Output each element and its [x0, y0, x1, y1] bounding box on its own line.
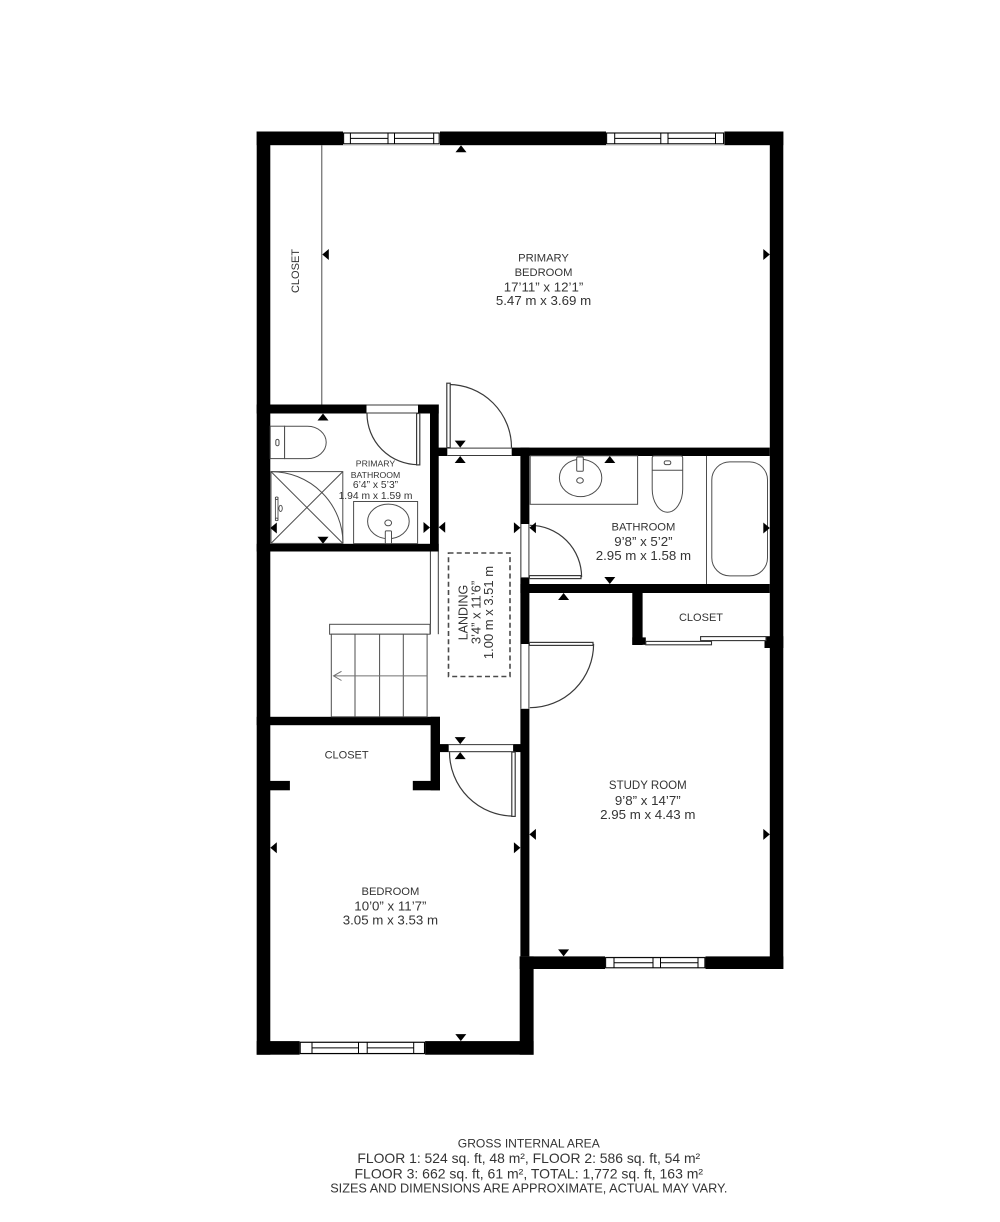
- svg-text:SIZES AND DIMENSIONS ARE APPRO: SIZES AND DIMENSIONS ARE APPROXIMATE, AC…: [330, 1182, 727, 1196]
- svg-text:6’4” x 5’3”: 6’4” x 5’3”: [353, 480, 399, 491]
- svg-text:FLOOR 3: 662 sq. ft, 61 m², TO: FLOOR 3: 662 sq. ft, 61 m², TOTAL: 1,772…: [355, 1165, 704, 1181]
- svg-text:9’8” x 5’2”: 9’8” x 5’2”: [614, 534, 672, 549]
- svg-text:PRIMARY: PRIMARY: [518, 252, 569, 264]
- svg-text:FLOOR 1: 524 sq. ft, 48 m², FL: FLOOR 1: 524 sq. ft, 48 m², FLOOR 2: 586…: [357, 1150, 700, 1166]
- svg-text:3.05 m x 3.53 m: 3.05 m x 3.53 m: [343, 913, 438, 928]
- svg-text:BATHROOM: BATHROOM: [351, 470, 401, 480]
- svg-text:BEDROOM: BEDROOM: [361, 886, 419, 898]
- svg-text:GROSS INTERNAL AREA: GROSS INTERNAL AREA: [458, 1137, 601, 1151]
- svg-text:1.94 m x 1.59 m: 1.94 m x 1.59 m: [339, 491, 413, 502]
- svg-text:BEDROOM: BEDROOM: [515, 267, 573, 279]
- svg-text:2.95 m x 1.58 m: 2.95 m x 1.58 m: [596, 548, 691, 563]
- svg-text:CLOSET: CLOSET: [325, 750, 369, 762]
- svg-text:CLOSET: CLOSET: [290, 249, 302, 293]
- svg-text:PRIMARY: PRIMARY: [356, 459, 396, 469]
- svg-text:2.95 m x 4.43 m: 2.95 m x 4.43 m: [600, 807, 695, 822]
- svg-text:10’0” x 11’7”: 10’0” x 11’7”: [354, 899, 426, 914]
- svg-text:1.00 m x 3.51 m: 1.00 m x 3.51 m: [481, 566, 496, 659]
- svg-text:STUDY ROOM: STUDY ROOM: [609, 780, 687, 792]
- svg-text:9’8” x 14’7”: 9’8” x 14’7”: [615, 793, 681, 808]
- svg-text:5.47 m x 3.69 m: 5.47 m x 3.69 m: [496, 293, 591, 308]
- svg-text:CLOSET: CLOSET: [679, 612, 723, 624]
- svg-text:BATHROOM: BATHROOM: [611, 521, 675, 533]
